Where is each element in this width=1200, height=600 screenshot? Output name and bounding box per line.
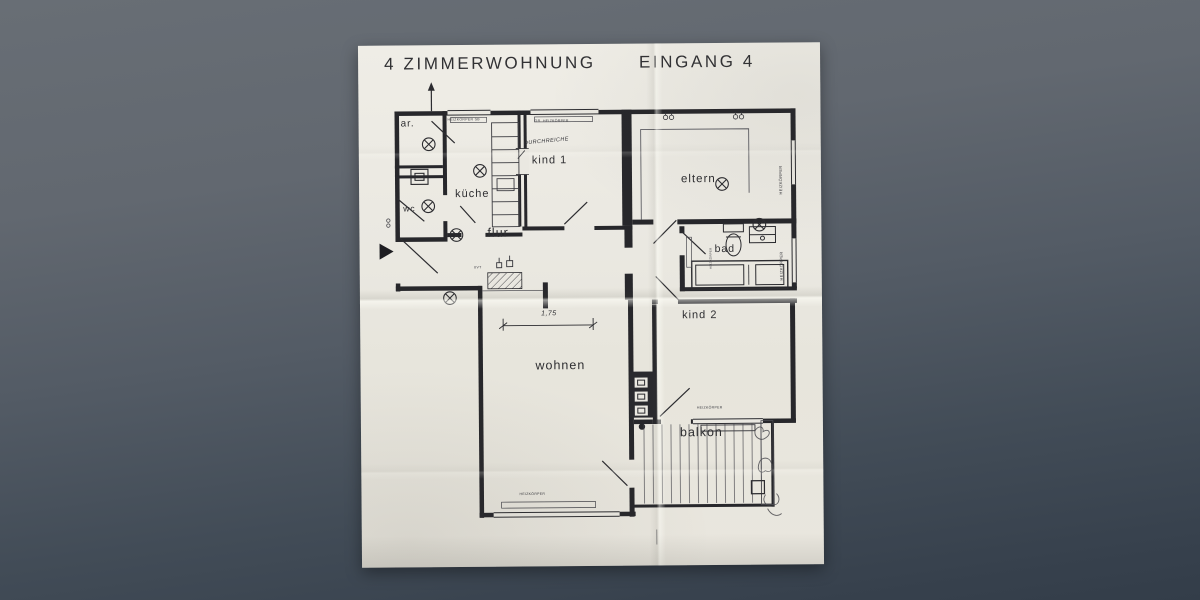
entrance-marker-icon — [380, 244, 394, 260]
door-kind2 — [656, 276, 679, 300]
room-label-eltern: eltern — [681, 174, 716, 186]
door-bad — [681, 231, 705, 254]
faucet-icon — [497, 256, 513, 268]
radiator-label-bad-right: HEIZKÖRPER — [780, 251, 784, 280]
door-kueche — [460, 206, 475, 223]
wall-marks-icon — [387, 219, 390, 227]
room-label-kueche: küche — [455, 189, 489, 200]
dimension-label: 1,75 — [541, 310, 557, 317]
room-label-wc: wc — [403, 204, 415, 213]
room-label-flur: flur — [487, 227, 508, 240]
room-label-wohnen: wohnen — [535, 359, 585, 372]
floorplan-sheet: 4 ZIMMERWOHNUNG EINGANG 4 — [358, 42, 824, 568]
room-label-balkon: balkon — [680, 426, 723, 439]
window-wohnen — [494, 501, 620, 519]
ceiling-light-icon — [474, 165, 487, 178]
door-entry — [399, 237, 437, 273]
towel-radiator — [686, 237, 691, 267]
room-label-kind2: kind 2 — [682, 310, 717, 321]
radiator-wohnen — [502, 501, 596, 508]
bathtub-icon — [692, 260, 788, 289]
electrical-panel-icon — [630, 371, 656, 417]
dimension-line — [499, 318, 597, 331]
door-balkon-wohnen — [602, 461, 627, 486]
radiator-label-kind2: HEIZKÖRPER — [697, 406, 723, 410]
uvt-label: UVT — [474, 266, 482, 270]
ceiling-light-icon — [422, 200, 435, 213]
door-eltern — [653, 220, 676, 243]
radiator-label-kind1: GR. HEIZKÖRPER — [535, 119, 569, 123]
radiator-label-kueche: HEIZKÖRPER SB — [448, 118, 480, 122]
fixtures — [411, 120, 789, 431]
door-kind1 — [564, 202, 587, 224]
radiator-label-bad-left: HEIZKÖRPER — [710, 248, 713, 270]
sink-icon — [749, 227, 775, 243]
ceiling-light-icon — [716, 178, 729, 191]
window-bad — [790, 238, 797, 282]
ceiling-light-icon — [444, 292, 457, 305]
radiator-label-eltern: HEIZKÖRPER — [779, 165, 783, 194]
photo-backdrop: 4 ZIMMERWOHNUNG EINGANG 4 — [0, 0, 1200, 600]
step-hatch — [488, 273, 522, 289]
ceiling-light-icon — [422, 138, 435, 151]
kitchen-counter — [492, 123, 520, 227]
door-balkon-kind2 — [660, 388, 690, 416]
pass-through-opening — [516, 148, 529, 174]
north-arrow-icon — [428, 82, 435, 111]
window-eltern — [790, 140, 797, 184]
room-label-kind1: kind 1 — [532, 155, 567, 166]
room-label-bad: bad — [715, 244, 736, 255]
radiator-label-wohnen: HEIZKÖRPER — [519, 492, 545, 496]
floorplan-drawing — [358, 42, 824, 568]
room-label-ar: ar. — [401, 119, 415, 129]
